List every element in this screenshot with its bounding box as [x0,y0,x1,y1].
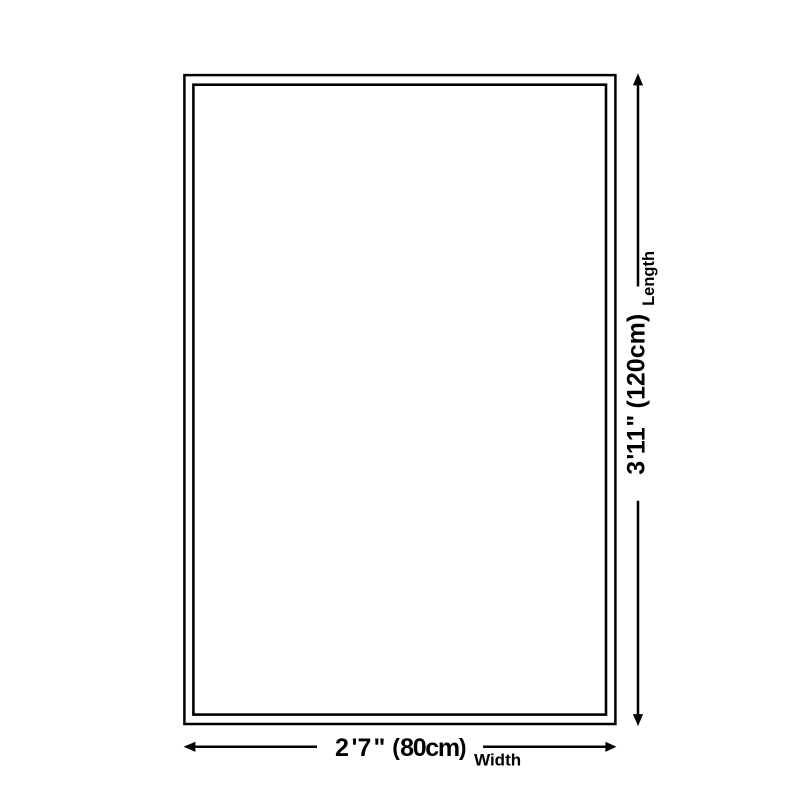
svg-text:80cm: 80cm [400,734,459,762]
svg-text:1: 1 [623,440,651,454]
svg-text:": " [623,415,651,427]
svg-text:Width: Width [474,751,521,770]
svg-text:7: 7 [358,734,372,762]
svg-text:2: 2 [335,734,349,762]
svg-text:(: ( [392,734,400,760]
svg-text:): ) [459,734,467,760]
svg-text:1: 1 [623,427,651,441]
svg-text:Length: Length [640,251,658,306]
svg-text:": " [374,734,386,762]
svg-text:3: 3 [623,461,651,475]
svg-text:120cm): 120cm) [623,314,651,400]
